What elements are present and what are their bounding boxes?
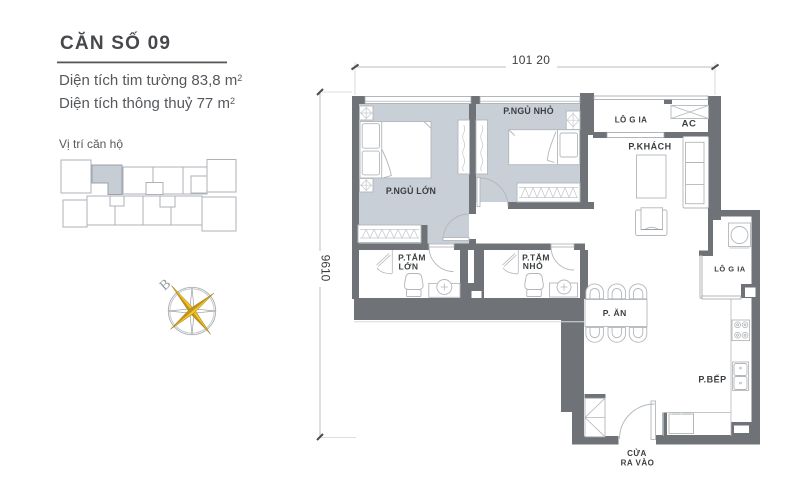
svg-text:101 20: 101 20	[512, 53, 551, 67]
svg-text:9610: 9610	[319, 255, 333, 282]
svg-text:P. ĂN: P. ĂN	[603, 308, 627, 318]
svg-text:Diện tích thông thuỷ 77 m2: Diện tích thông thuỷ 77 m2	[59, 95, 235, 112]
svg-text:P.NGỦ NHỎ: P.NGỦ NHỎ	[503, 105, 554, 116]
svg-text:RA VÀO: RA VÀO	[621, 459, 655, 468]
svg-text:AC: AC	[682, 119, 697, 130]
svg-text:P.BẾP: P.BẾP	[698, 375, 726, 385]
svg-text:LỚN: LỚN	[398, 261, 418, 272]
svg-text:Vị trí căn hộ: Vị trí căn hộ	[59, 137, 123, 151]
svg-text:LÔ G IA: LÔ G IA	[615, 116, 648, 125]
svg-text:Diện tích tim tường 83,8 m2: Diện tích tim tường 83,8 m2	[59, 72, 242, 89]
svg-text:CỬA: CỬA	[627, 449, 647, 458]
svg-text:P.NGỦ LỚN: P.NGỦ LỚN	[386, 185, 436, 196]
svg-text:LÔ G IA: LÔ G IA	[714, 265, 746, 274]
svg-text:P.KHÁCH: P.KHÁCH	[628, 142, 671, 152]
svg-text:NHỎ: NHỎ	[523, 260, 543, 271]
svg-text:CĂN SỐ 09: CĂN SỐ 09	[60, 32, 171, 54]
